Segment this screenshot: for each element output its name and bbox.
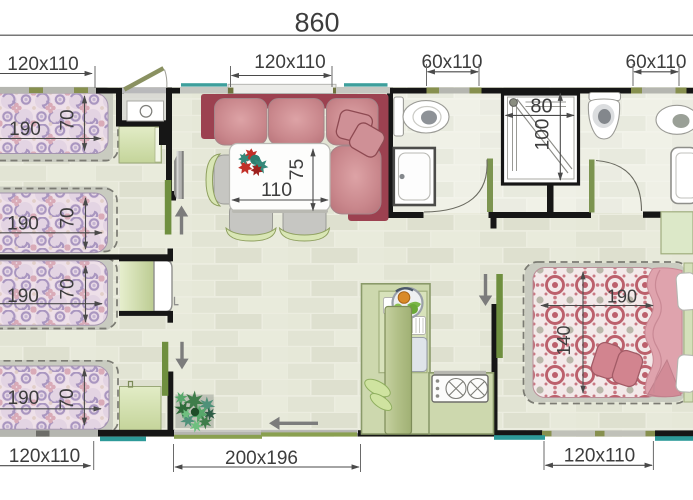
svg-text:120x110: 120x110 bbox=[254, 52, 326, 73]
svg-text:70: 70 bbox=[58, 278, 79, 299]
svg-text:70: 70 bbox=[58, 109, 79, 130]
svg-text:120x110: 120x110 bbox=[9, 446, 81, 467]
svg-text:100: 100 bbox=[533, 119, 554, 151]
svg-text:70: 70 bbox=[57, 388, 78, 409]
svg-text:70: 70 bbox=[58, 207, 79, 228]
svg-text:120x110: 120x110 bbox=[564, 446, 636, 467]
svg-text:190: 190 bbox=[607, 287, 637, 307]
svg-text:80: 80 bbox=[530, 95, 552, 117]
svg-text:860: 860 bbox=[294, 8, 339, 38]
svg-text:60x110: 60x110 bbox=[422, 52, 483, 73]
svg-text:75: 75 bbox=[286, 159, 308, 181]
svg-text:190: 190 bbox=[8, 388, 40, 409]
svg-text:190: 190 bbox=[9, 119, 41, 140]
svg-text:60x110: 60x110 bbox=[626, 52, 687, 73]
svg-text:200x196: 200x196 bbox=[225, 448, 298, 469]
svg-text:140: 140 bbox=[554, 325, 574, 355]
svg-text:110: 110 bbox=[261, 179, 292, 201]
svg-text:120x110: 120x110 bbox=[7, 54, 79, 75]
svg-text:190: 190 bbox=[7, 214, 39, 235]
